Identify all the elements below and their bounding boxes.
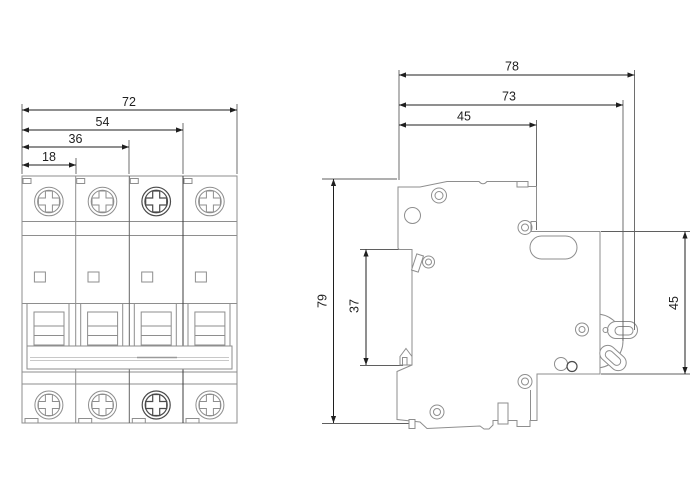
label-windows: [34, 272, 206, 282]
toggle-slots: [27, 304, 230, 347]
side-body-outline: [397, 182, 600, 430]
toggle-slot: [188, 304, 230, 347]
dim-side-front-height: 45: [667, 232, 688, 375]
rivets: [405, 188, 589, 419]
pole-dividers: [76, 176, 183, 423]
dim-front-overall-width: 72: [22, 95, 237, 113]
dim-label: 37: [348, 299, 362, 313]
handle-window-slot: [530, 236, 577, 259]
dim-label: 79: [316, 294, 330, 308]
dim-label: 54: [96, 115, 110, 129]
dim-label: 73: [502, 90, 516, 104]
terminal-cover-tab: [517, 182, 528, 188]
terminal-screw: [196, 187, 225, 216]
plug-pin: [498, 403, 508, 424]
technical-drawing-canvas: 72 54 36 18: [0, 0, 700, 500]
dark-rivet: [567, 362, 577, 372]
dim-label: 18: [42, 150, 56, 164]
terminal-screw: [196, 391, 224, 419]
dim-side-body-depth: 73: [399, 90, 623, 108]
terminal-screw: [35, 187, 64, 216]
dim-label: 72: [122, 95, 136, 109]
side-dimensions: 78 73 45 79: [316, 60, 688, 424]
toggle-slot: [81, 304, 123, 347]
front-dimensions: 72 54 36 18: [22, 95, 237, 174]
toggle-handle-group: [596, 314, 637, 374]
dim-label: 78: [505, 60, 519, 74]
toggle-handle-off: [596, 342, 629, 374]
dim-front-three-poles: 54: [22, 115, 183, 133]
terminal-screw: [142, 391, 170, 419]
handle-tie-bar: [27, 346, 232, 369]
side-view: 78 73 45 79: [316, 60, 691, 430]
dim-side-overall-depth: 78: [399, 60, 635, 78]
toggle-handle-on: [608, 322, 638, 339]
dim-front-two-poles: 36: [22, 132, 129, 150]
rail-clip: [400, 349, 412, 366]
terminal-screw: [35, 391, 63, 419]
toggle-slot: [27, 304, 69, 347]
terminal-screw: [89, 391, 117, 419]
terminal-screw: [88, 187, 117, 216]
dim-side-rail-recess: 37: [348, 250, 369, 366]
dim-side-height: 79: [316, 179, 337, 423]
molded-hole: [405, 208, 421, 224]
dim-label: 45: [667, 296, 681, 310]
dim-label: 45: [457, 110, 471, 124]
dim-label: 36: [69, 132, 83, 146]
front-view: 72 54 36 18: [22, 95, 237, 423]
toggle-slot: [134, 304, 176, 347]
dim-side-upper-depth: 45: [399, 110, 537, 128]
dim-front-one-pole: 18: [22, 150, 76, 168]
terminal-screw: [142, 187, 171, 216]
bottom-tab: [409, 420, 415, 429]
breaker-dimension-drawing: 72 54 36 18: [0, 0, 700, 500]
latch-tab: [412, 254, 424, 272]
